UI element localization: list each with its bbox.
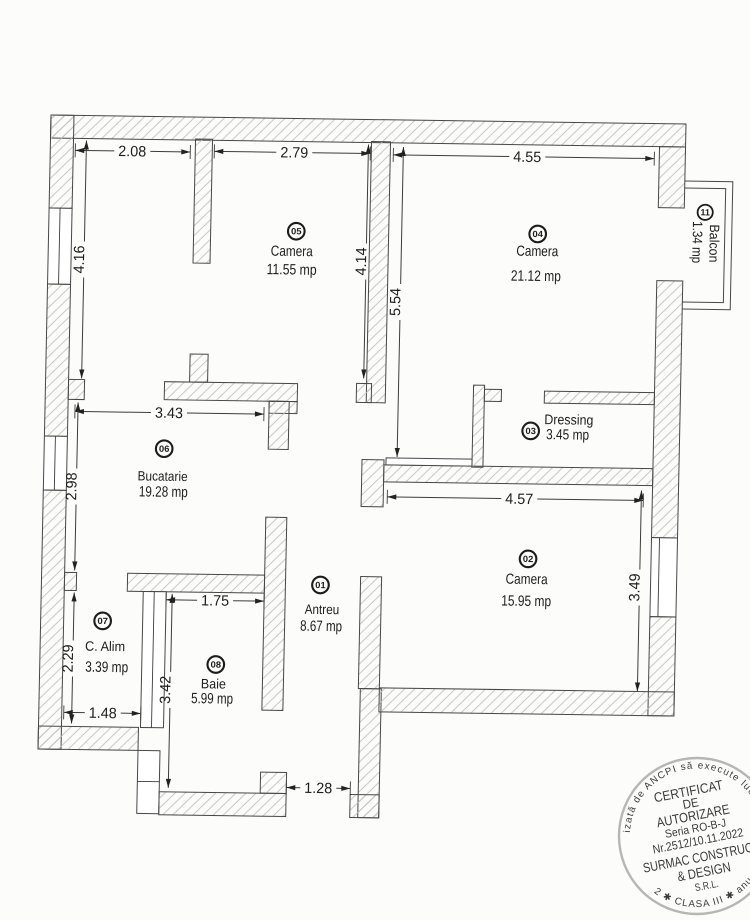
- svg-text:2.08: 2.08: [118, 143, 146, 160]
- svg-text:2.98: 2.98: [63, 472, 81, 500]
- svg-text:Baie: Baie: [201, 676, 226, 691]
- svg-text:21.12 mp: 21.12 mp: [511, 268, 561, 286]
- svg-text:07: 07: [97, 616, 108, 626]
- svg-text:11.55 mp: 11.55 mp: [266, 261, 316, 279]
- svg-text:06: 06: [159, 444, 170, 454]
- svg-text:08: 08: [210, 660, 221, 670]
- svg-text:4.57: 4.57: [505, 491, 533, 508]
- svg-text:1.28: 1.28: [304, 780, 332, 797]
- svg-text:8.67 mp: 8.67 mp: [300, 618, 342, 636]
- svg-text:3.43: 3.43: [155, 405, 183, 422]
- svg-text:03: 03: [525, 426, 536, 436]
- svg-text:02: 02: [523, 554, 534, 564]
- svg-text:11: 11: [700, 207, 710, 217]
- svg-text:04: 04: [532, 229, 543, 239]
- svg-text:01: 01: [315, 580, 326, 590]
- svg-text:Dressing: Dressing: [544, 411, 593, 428]
- svg-text:Antreu: Antreu: [305, 602, 340, 617]
- svg-text:05: 05: [291, 226, 302, 236]
- svg-text:15.95 mp: 15.95 mp: [501, 593, 551, 611]
- svg-text:2.79: 2.79: [280, 144, 308, 161]
- svg-text:3.45 mp: 3.45 mp: [546, 427, 589, 444]
- svg-text:3.42: 3.42: [157, 676, 175, 704]
- svg-text:19.28 mp: 19.28 mp: [139, 483, 188, 501]
- svg-text:Camera: Camera: [516, 244, 559, 261]
- svg-text:4.14: 4.14: [353, 247, 371, 275]
- svg-text:3.39 mp: 3.39 mp: [85, 659, 128, 677]
- svg-text:2.29: 2.29: [60, 644, 78, 672]
- svg-text:Bucatarie: Bucatarie: [137, 468, 187, 484]
- svg-text:1.48: 1.48: [89, 705, 117, 722]
- svg-text:5.99 mp: 5.99 mp: [191, 690, 233, 708]
- svg-text:4.16: 4.16: [71, 245, 89, 273]
- svg-text:3.49: 3.49: [626, 573, 644, 601]
- svg-text:1.34 mp: 1.34 mp: [689, 221, 705, 263]
- svg-text:5.54: 5.54: [387, 288, 405, 316]
- svg-text:Balcon: Balcon: [706, 224, 722, 262]
- svg-text:Camera: Camera: [271, 244, 314, 261]
- svg-text:C. Alim: C. Alim: [85, 639, 125, 655]
- svg-text:4.55: 4.55: [513, 149, 541, 166]
- svg-text:Camera: Camera: [505, 572, 548, 589]
- svg-text:1.75: 1.75: [201, 592, 229, 609]
